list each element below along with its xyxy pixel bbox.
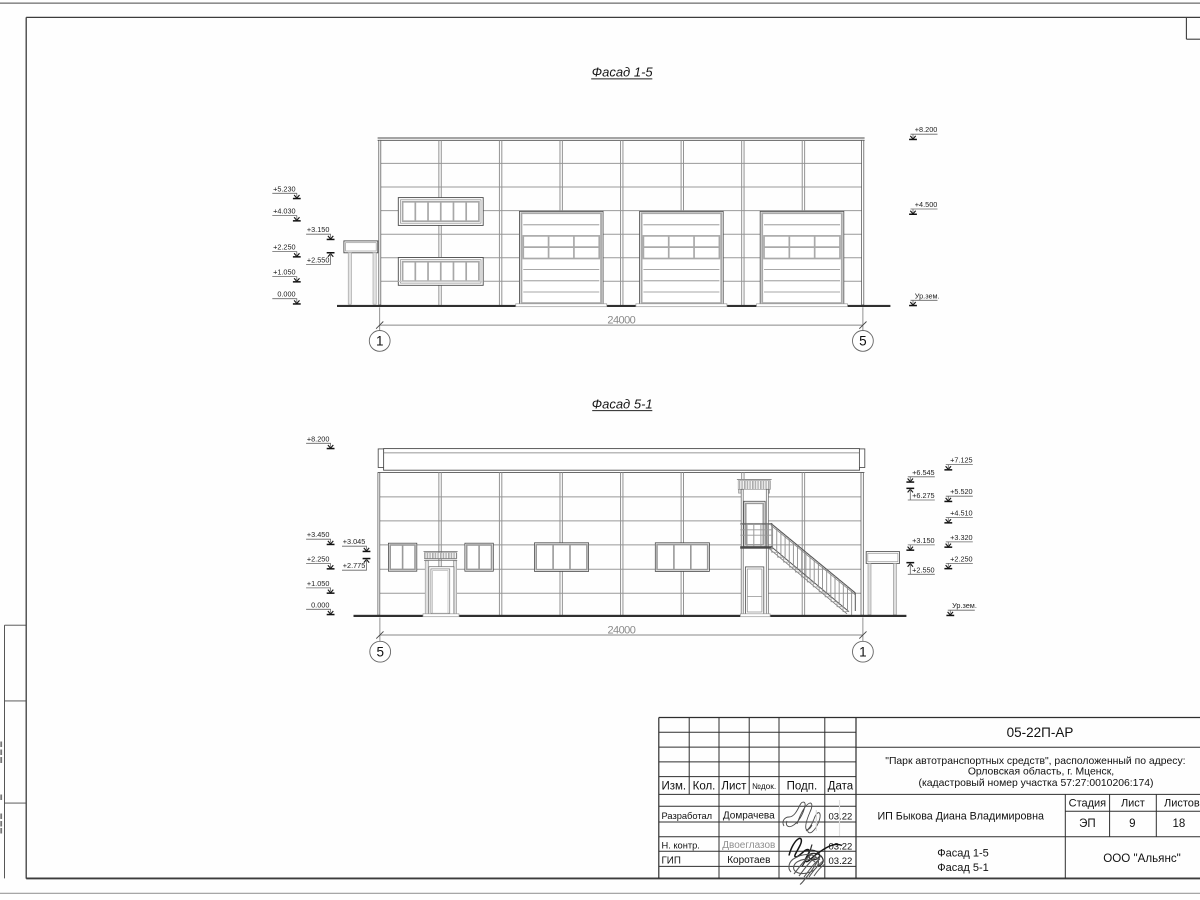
svg-text:Изм.: Изм. <box>661 781 686 793</box>
svg-text:ООО "Альянс": ООО "Альянс" <box>1103 852 1181 865</box>
svg-text:"Парк автотранспортных средств: "Парк автотранспортных средств", располо… <box>885 756 1185 767</box>
svg-text:+2.550: +2.550 <box>307 255 330 264</box>
svg-text:1: 1 <box>376 334 384 349</box>
svg-text:+2.250: +2.250 <box>273 243 296 252</box>
svg-text:1: 1 <box>859 644 867 659</box>
svg-text:Лист: Лист <box>721 781 747 793</box>
svg-text:+1.050: +1.050 <box>307 579 330 588</box>
svg-text:Дата: Дата <box>828 781 854 793</box>
svg-text:24000: 24000 <box>607 624 635 636</box>
svg-text:+5.520: +5.520 <box>950 487 973 496</box>
svg-text:9: 9 <box>1129 818 1135 830</box>
svg-text:Двоеглазов: Двоеглазов <box>722 840 775 851</box>
svg-text:Лист: Лист <box>1121 798 1145 810</box>
svg-text:+8.200: +8.200 <box>915 125 938 134</box>
svg-text:Коротаев: Коротаев <box>727 855 770 866</box>
svg-text:0.000: 0.000 <box>311 600 329 609</box>
svg-text:5: 5 <box>376 644 384 659</box>
svg-text:24000: 24000 <box>607 314 635 326</box>
svg-text:+1.050: +1.050 <box>273 268 296 277</box>
svg-text:Разработал: Разработал <box>662 811 713 821</box>
svg-text:Кол.: Кол. <box>693 781 716 793</box>
svg-text:+2.250: +2.250 <box>950 554 973 563</box>
svg-text:ИП Быкова Диана Владимировна: ИП Быкова Диана Владимировна <box>877 811 1044 823</box>
svg-text:0.000: 0.000 <box>277 290 295 299</box>
svg-text:05-22П-АР: 05-22П-АР <box>1007 725 1074 740</box>
svg-text:+2.250: +2.250 <box>307 555 330 564</box>
svg-text:18: 18 <box>1173 818 1186 830</box>
svg-text:Н. контр.: Н. контр. <box>662 841 700 851</box>
svg-text:+3.320: +3.320 <box>950 533 973 542</box>
svg-text:+4.500: +4.500 <box>915 200 938 209</box>
svg-text:№док.: №док. <box>752 781 776 791</box>
svg-text:Подп.: Подп. <box>787 781 818 793</box>
svg-text:+3.450: +3.450 <box>307 530 330 539</box>
svg-text:(кадастровый номер участка 57:: (кадастровый номер участка 57:27:0010206… <box>919 778 1154 789</box>
svg-text:+3.150: +3.150 <box>307 225 330 234</box>
svg-text:03.22: 03.22 <box>829 856 853 867</box>
svg-text:+4.510: +4.510 <box>950 509 973 518</box>
svg-text:Ур.зем.: Ур.зем. <box>952 601 977 610</box>
svg-text:ГИП: ГИП <box>662 855 681 866</box>
svg-text:Орловская область, г. Мценск,: Орловская область, г. Мценск, <box>968 765 1114 777</box>
svg-text:Ур.зем.: Ур.зем. <box>915 291 940 300</box>
svg-text:+3.045: +3.045 <box>343 537 366 546</box>
svg-text:Домрачева: Домрачева <box>723 810 775 821</box>
svg-text:5: 5 <box>859 334 867 349</box>
svg-text:+5.230: +5.230 <box>273 184 296 193</box>
svg-text:Стадия: Стадия <box>1069 798 1107 810</box>
svg-text:+4.030: +4.030 <box>273 207 296 216</box>
svg-text:03.22: 03.22 <box>829 812 853 823</box>
svg-text:Фасад 1-5: Фасад 1-5 <box>592 65 654 80</box>
svg-text:Фасад 5-1: Фасад 5-1 <box>592 396 653 411</box>
svg-text:+2.550: +2.550 <box>912 565 935 574</box>
svg-text:Листов: Листов <box>1164 798 1200 810</box>
svg-text:03.22: 03.22 <box>829 842 853 853</box>
svg-text:+6.545: +6.545 <box>912 468 935 477</box>
svg-text:+6.275: +6.275 <box>912 491 935 500</box>
svg-text:+7.125: +7.125 <box>950 456 973 465</box>
svg-text:+3.150: +3.150 <box>912 536 935 545</box>
svg-text:Фасад 5-1: Фасад 5-1 <box>937 862 988 874</box>
svg-text:Фасад 1-5: Фасад 1-5 <box>937 848 988 860</box>
svg-text:ЭП: ЭП <box>1079 818 1096 830</box>
svg-text:+8.200: +8.200 <box>307 434 330 443</box>
svg-text:+2.775: +2.775 <box>343 561 366 570</box>
